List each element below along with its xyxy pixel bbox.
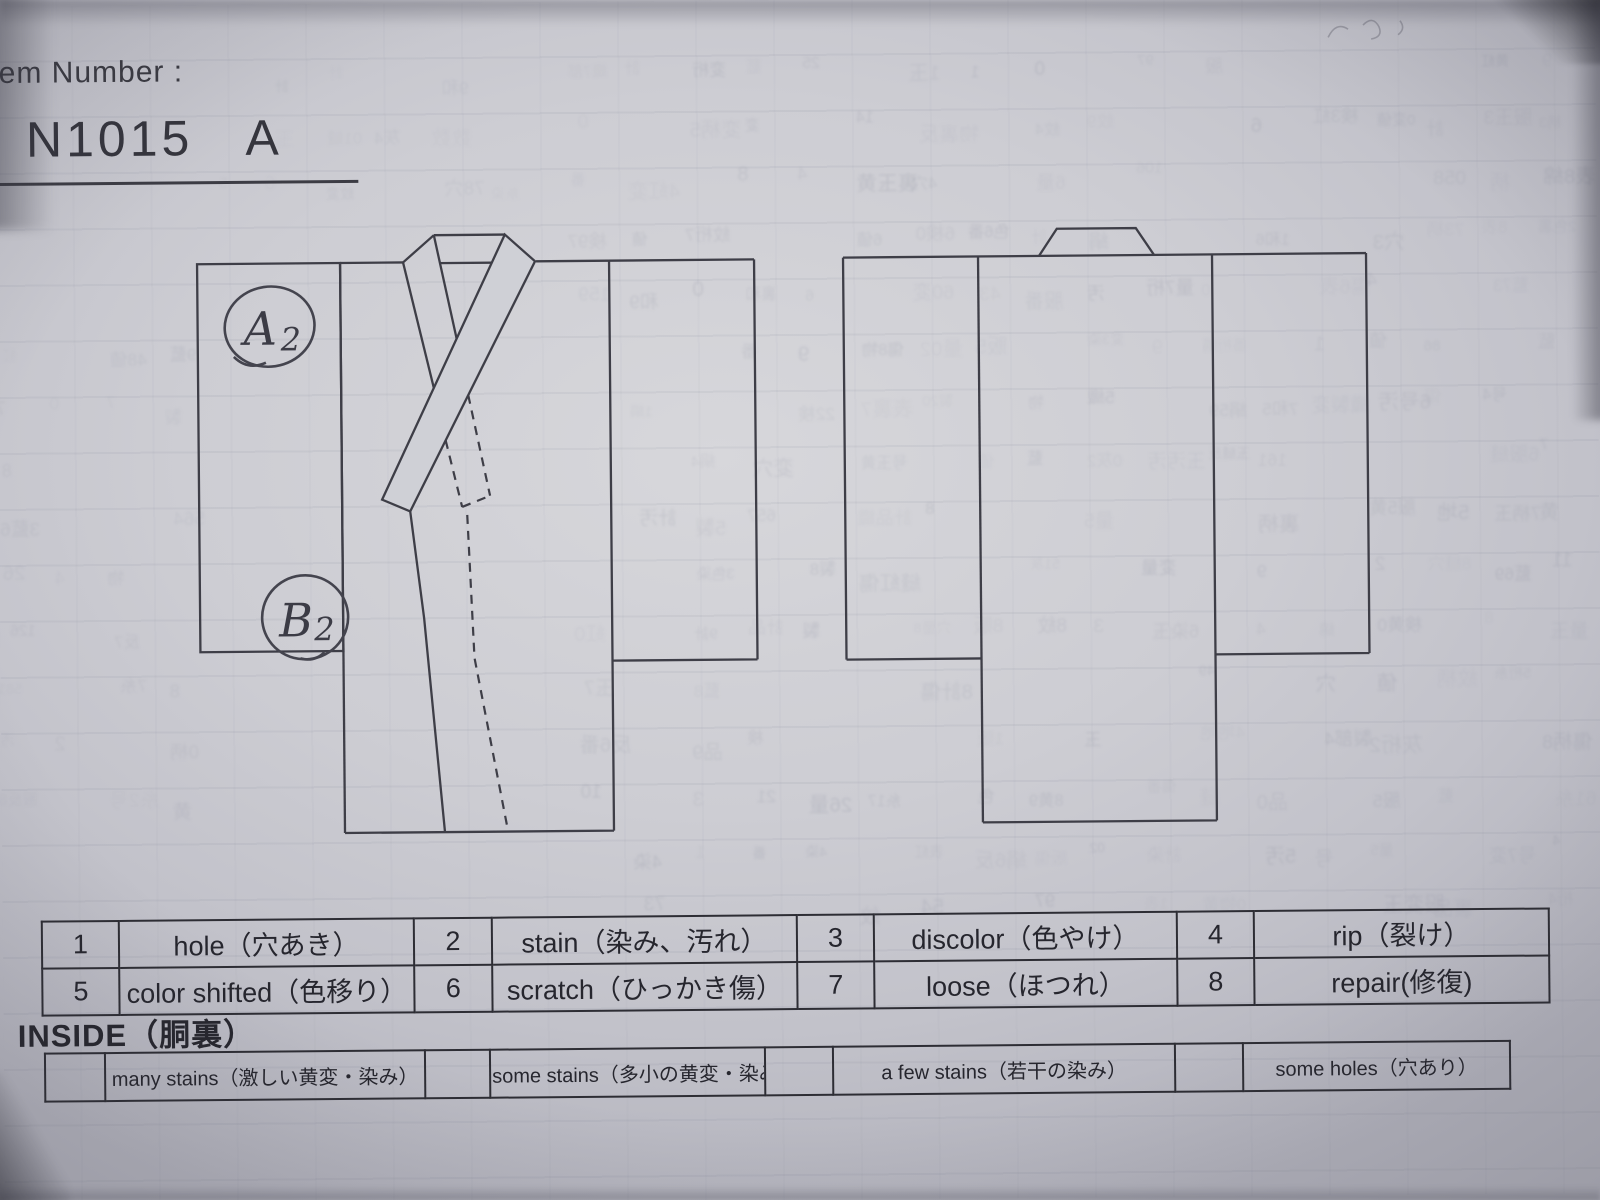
annotation-a2-digit: 2 [280,320,302,358]
front-shoulder-line [340,259,754,263]
back-right-sleeve [1212,253,1369,654]
legend-label: scratch（ひっかき傷） [492,962,797,1012]
legend-num: 2 [414,918,492,966]
inside-option-label: some stains（多小の黄変・染み） [490,1047,765,1097]
checkbox-cell [1175,1043,1243,1092]
annotation-b2-circle-tail [300,652,324,659]
inspection-sheet-photo: 織7部計変桁藍251玉1097服黄紅90変柄5変14物裏反紋4紋96検3紅0変値… [0,0,1600,1200]
annotation-b2-letter: B [278,593,313,647]
annotation-a2: A 2 [219,280,320,373]
legend-label: color shifted（色移り） [119,965,414,1015]
legend-num: 8 [1177,958,1254,1006]
kimono-front-diagram: A 2 B 2 [197,232,759,834]
back-shoulder-line [843,253,1366,258]
inside-option-label: some holes（穴あり） [1243,1041,1510,1091]
checkbox-cell [45,1053,105,1102]
back-body-right-and-hem [978,254,1217,822]
back-body-left-edge [978,256,983,822]
inside-option-label: a few stains（若干の染み） [833,1044,1175,1095]
inside-section-title: INSIDE（胴裏） [18,1009,256,1056]
stray-pen-marks [1328,20,1403,39]
front-collar-under-inner [434,235,457,339]
legend-label: discolor（色やけ） [874,912,1177,962]
legend-num: 3 [797,914,874,962]
checkbox-cell [425,1050,490,1099]
legend-num: 4 [1177,911,1254,959]
legend-label: stain（染み、汚れ） [492,915,797,965]
legend-label: loose（ほつれ） [874,959,1177,1009]
checkbox-cell [765,1047,833,1096]
legend-num: 7 [797,961,874,1009]
annotation-b2-digit: 2 [313,610,335,648]
back-left-sleeve [843,256,982,659]
legend-num: 6 [414,965,492,1013]
front-right-sleeve [609,259,757,660]
defect-legend-table: 1 hole（穴あき） 2 stain（染み、汚れ） 3 discolor（色や… [41,907,1551,1016]
back-collar [1039,228,1154,256]
front-collar-over-band [380,234,537,511]
legend-label: rip（裂け） [1254,908,1549,958]
inside-option-label: many stains（激しい黄変・染み） [105,1050,425,1101]
legend-num: 5 [42,968,119,1016]
annotation-a2-letter: A [239,302,277,356]
legend-num: 1 [42,921,119,969]
legend-label: repair(修復) [1254,955,1549,1005]
paper-content: 織7部計変桁藍251玉1097服黄紅90変柄5変14物裏反紋4紋96検3紅0変値… [0,0,1600,1200]
front-body-left-edge [340,263,345,833]
front-collar-under-outer [403,262,434,389]
kimono-back-diagram [843,226,1371,824]
front-okumi-line [410,511,445,832]
front-collar-top [403,235,505,263]
front-okumi-hidden-line [467,515,508,831]
legend-label: hole（穴あき） [119,918,414,968]
